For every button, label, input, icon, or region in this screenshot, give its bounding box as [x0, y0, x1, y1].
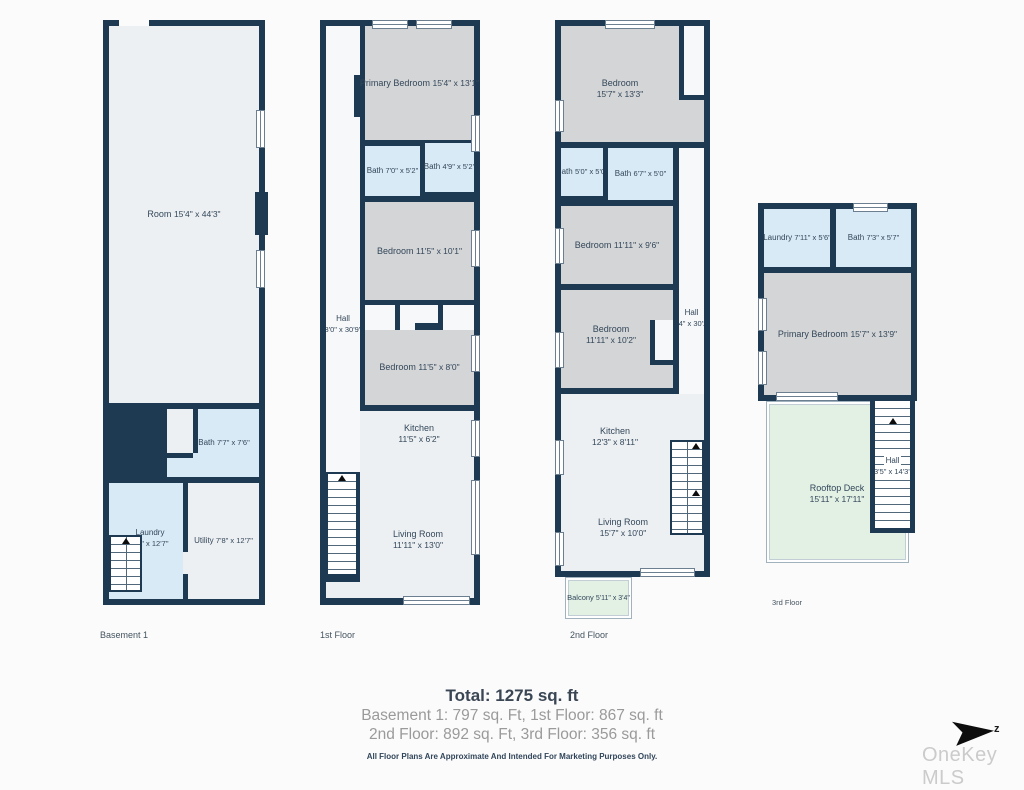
door-opening	[119, 20, 149, 26]
stairs	[326, 472, 358, 576]
room-second-bedroom-1b	[679, 100, 704, 142]
void-notch	[684, 26, 704, 95]
room-first-bath-2: Bath 4'9" x 5'2"	[425, 143, 474, 192]
room-label: Living Room 15'7" x 10'0"	[575, 516, 671, 540]
plan-basement: Room 15'4" x 44'3" Bath 7'7" x 7'6" Laun…	[103, 20, 265, 605]
room-label: Primary Bedroom 15'4" x 13'1"	[360, 77, 479, 89]
wall	[167, 453, 193, 458]
room-label: Hall 3'5" x 14'3"	[870, 456, 915, 477]
room-label: Living Room 11'11" x 13'0"	[370, 528, 466, 552]
door-jamb	[255, 192, 268, 235]
void-notch	[655, 320, 673, 360]
stairs-up-arrow-icon	[889, 418, 897, 424]
room-first-primary-bedroom: Primary Bedroom 15'4" x 13'1"	[365, 26, 474, 140]
room-third-laundry: Laundry 7'11" x 5'6"	[764, 209, 830, 267]
stairs	[670, 440, 704, 535]
floor-label-basement: Basement 1	[100, 630, 148, 640]
room-third-primary-bedroom: Primary Bedroom 15'7" x 13'9"	[764, 273, 911, 395]
window	[555, 332, 564, 368]
room-label: Hall 3'4" x 30'2"	[679, 308, 704, 329]
window	[471, 335, 480, 372]
wall	[193, 409, 198, 453]
floor-area	[326, 582, 360, 598]
room-label: Bath 7'7" x 7'6"	[198, 438, 250, 449]
window	[372, 20, 408, 29]
window	[471, 115, 480, 152]
window	[471, 230, 480, 267]
area-line-1: Basement 1: 797 sq. Ft, 1st Floor: 867 s…	[0, 707, 1024, 725]
window	[605, 20, 655, 29]
floor-label-first: 1st Floor	[320, 630, 355, 640]
stair-divider	[126, 537, 127, 590]
room-label: Bath 5'0" x 5'0"	[561, 167, 603, 178]
window	[640, 568, 695, 577]
room-label: Kitchen 12'3" x 8'11"	[570, 425, 660, 449]
wall	[650, 320, 655, 365]
room-label: Kitchen 11'5" x 6'2"	[375, 422, 463, 446]
room-second-bedroom-2: Bedroom 11'11" x 9'6"	[561, 206, 673, 284]
room-label: Bedroom 11'5" x 8'0"	[379, 361, 459, 373]
room-label: Hall 3'0" x 30'9"	[326, 314, 360, 335]
window	[416, 20, 452, 29]
room-first-bedroom-1: Bedroom 11'5" x 10'1"	[365, 202, 474, 300]
stair-divider	[687, 442, 688, 533]
compass-direction-label: z	[994, 723, 1000, 735]
room-label: Room 15'4" x 44'3"	[147, 208, 220, 220]
room-label: Balcony 5'11" x 3'4"	[567, 593, 630, 603]
room-label: Utility 7'8" x 12'7"	[194, 536, 253, 547]
window	[555, 100, 564, 132]
window	[403, 596, 470, 605]
plan-first-floor: Hall 3'0" x 30'9" Primary Bedroom 15'4" …	[320, 20, 480, 605]
stairs-up-arrow-icon	[122, 538, 130, 544]
area-line-2: 2nd Floor: 892 sq. Ft, 3rd Floor: 356 sq…	[0, 726, 1024, 744]
room-first-bath-1: Bath 7'0" x 5'2"	[365, 146, 420, 196]
window	[776, 392, 838, 401]
room-label: Bath 7'0" x 5'2"	[367, 166, 419, 177]
floorplan-page: { "colors": { "wall": "#1e3a52", "room_g…	[0, 0, 1024, 768]
floor-label-third: 3rd Floor	[772, 598, 802, 607]
stairs-up-arrow-icon	[692, 443, 700, 449]
room-label: Bath 6'7" x 5'0"	[615, 169, 667, 180]
room-label: Bedroom 11'5" x 10'1"	[377, 245, 462, 257]
room-second-balcony: Balcony 5'11" x 3'4"	[565, 577, 632, 619]
wall	[395, 305, 400, 330]
room-third-bath: Bath 7'3" x 5'7"	[836, 209, 911, 267]
room-label: Bedroom 15'7" x 13'3"	[575, 77, 665, 101]
area-summary: Total: 1275 sq. ft Basement 1: 797 sq. F…	[0, 686, 1024, 761]
room-basement-utility: Utility 7'8" x 12'7"	[188, 483, 259, 599]
room-label: Primary Bedroom 15'7" x 13'9"	[778, 328, 897, 340]
wall	[655, 360, 673, 365]
room-label: Bedroom 11'11" x 10'2"	[567, 323, 655, 347]
plan-third-floor: Laundry 7'11" x 5'6" Bath 7'3" x 5'7" Pr…	[758, 203, 917, 401]
window	[555, 228, 564, 264]
total-area-text: Total: 1275 sq. ft	[0, 686, 1024, 706]
window	[758, 351, 767, 385]
plan-second-floor: Bedroom 15'7" x 13'3" Bath 5'0" x 5'0" B…	[555, 20, 710, 577]
room-first-bedroom-2: Bedroom 11'5" x 8'0"	[365, 330, 474, 405]
room-label: Bath 4'9" x 5'2"	[424, 162, 476, 173]
window	[758, 298, 767, 331]
window	[256, 250, 265, 288]
window	[471, 420, 480, 457]
bath-vestibule	[167, 409, 193, 453]
window	[853, 203, 888, 212]
stairs-up-arrow-icon	[338, 475, 346, 481]
stairs-up-arrow-icon	[692, 490, 700, 496]
disclaimer-text: All Floor Plans Are Approximate And Inte…	[0, 752, 1024, 761]
window	[471, 480, 480, 555]
room-second-bath-1: Bath 5'0" x 5'0"	[561, 148, 603, 196]
window	[256, 110, 265, 148]
room-label: Bath 7'3" x 5'7"	[848, 233, 900, 244]
room-label: Bedroom 11'11" x 9'6"	[575, 239, 659, 251]
room-second-bath-2: Bath 6'7" x 5'0"	[608, 148, 673, 200]
window	[555, 440, 564, 475]
onekey-mls-watermark: OneKey MLS	[922, 744, 1024, 790]
room-label: Laundry 7'11" x 5'6"	[763, 233, 831, 244]
room-basement-room: Room 15'4" x 44'3"	[109, 26, 259, 403]
wall	[415, 323, 443, 330]
floor-label-second: 2nd Floor	[570, 630, 608, 640]
door-opening	[183, 552, 188, 574]
window	[555, 532, 564, 566]
